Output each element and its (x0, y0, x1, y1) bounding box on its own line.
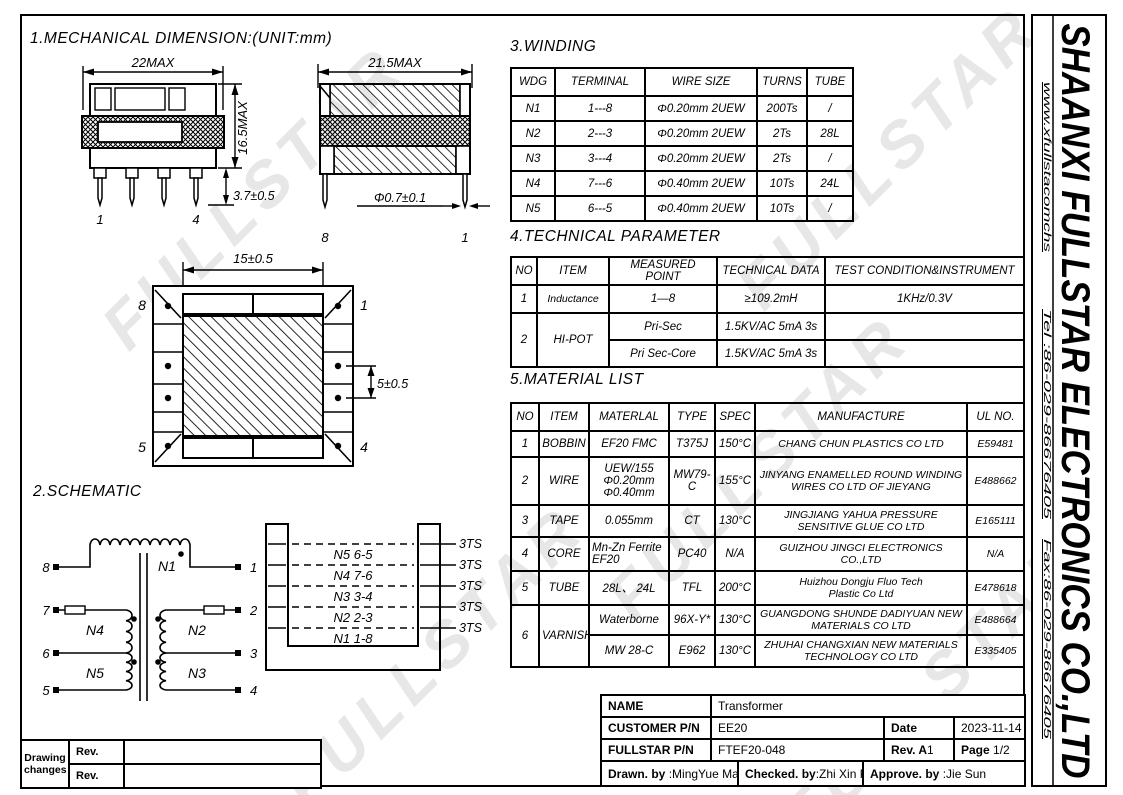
company-name: SHAANXI FULLSTAR ELECTRONICS CO.,LTD (1053, 24, 1097, 779)
customer-pn-label: CUSTOMER P/N (601, 717, 711, 739)
rev-value-empty (124, 764, 321, 788)
table-row: N47---6 Φ0.40mm 2UEW10Ts 24L (511, 171, 853, 196)
arrow-right (461, 69, 472, 76)
fullstar-pn: FTEF20-048 (711, 739, 884, 761)
arrow-left (183, 267, 194, 274)
tube-symbol (204, 606, 224, 614)
arrow-down (368, 388, 375, 398)
col-header: MEASURED POINT (609, 257, 717, 285)
part-name: Transformer (711, 695, 1025, 717)
table-row: N11---8 Φ0.20mm 2UEW200Ts / (511, 96, 853, 121)
side-pin-label-1: 1 (461, 230, 468, 245)
table-row: 6 VARNISH Waterborne 96X-Y* 130°C GUANGD… (511, 605, 1024, 635)
title-block-row: CUSTOMER P/N EE20 Date 2023-11-14 (601, 717, 1025, 739)
title-block-row: FULLSTAR P/N FTEF20-048 Rev. A1 Page 1/2 (601, 739, 1025, 761)
pin-label-5: 5 (42, 683, 50, 698)
pin (194, 178, 198, 205)
stack-layer-n4: N4 7-6 (333, 568, 373, 583)
col-header: TURNS (757, 68, 807, 96)
signature-row: Drawn. by :MingYue Ma Checked. by:Zhi Xi… (600, 760, 1026, 787)
table-row: N22---3 Φ0.20mm 2UEW2Ts 28L (511, 121, 853, 146)
customer-pn: EE20 (711, 717, 884, 739)
arrow-up (223, 168, 229, 178)
pin-label-4: 4 (250, 683, 257, 698)
arrow-down (232, 157, 239, 168)
fullstar-pn-label: FULLSTAR P/N (601, 739, 711, 761)
bottom-pin-label-4: 4 (360, 439, 368, 455)
table-row: 1 BOBBIN EF20 FMC T375J 150°C CHANG CHUN… (511, 431, 1024, 457)
company-website: www.xfullstacomchs (1041, 82, 1052, 252)
arrow-left (469, 203, 478, 209)
front-width-dim: 22MAX (131, 55, 176, 70)
col-header: WDG (511, 68, 555, 96)
winding-table: WDG TERMINAL WIRE SIZE TURNS TUBE N11---… (510, 67, 854, 222)
page-cell: Page 1/2 (954, 739, 1025, 761)
title-block: NAME Transformer CUSTOMER P/N EE20 Date … (600, 694, 1026, 762)
drawn-by-cell: Drawn. by :MingYue Ma (601, 761, 738, 786)
title-block-row: NAME Transformer (601, 695, 1025, 717)
col-header: TYPE (669, 403, 715, 431)
front-pinlen-dim: 3.7±0.5 (233, 189, 275, 203)
table-header-row: NO ITEM MEASURED POINT TECHNICAL DATA TE… (511, 257, 1024, 285)
winding-title: 3.WINDING (510, 38, 596, 56)
company-sidebar: www.xfullstacomchs Tel :86-029-86676405 … (1031, 14, 1107, 787)
arrow-left (83, 69, 94, 76)
arrow-down (223, 195, 229, 205)
rev-cell: Rev. A1 (884, 739, 954, 761)
pin-label-6: 6 (42, 646, 50, 661)
checked-by-cell: Checked. by:Zhi Xin Pu (738, 761, 863, 786)
arrow-up (232, 84, 239, 95)
arrow-left (318, 69, 329, 76)
tape-label: 3TS (459, 558, 483, 572)
material-table: NO ITEM MATERLAL TYPE SPEC MANUFACTURE U… (510, 402, 1025, 668)
pin-label-3: 3 (250, 646, 258, 661)
col-header: MANUFACTURE (755, 403, 967, 431)
side-pin-dia-dim: Φ0.7±0.1 (374, 191, 426, 205)
col-header: TECHNICAL DATA (717, 257, 825, 285)
front-pin-label-1: 1 (96, 212, 103, 227)
material-title: 5.MATERIAL LIST (510, 371, 644, 389)
bottom-pitch-dim: 5±0.5 (377, 377, 408, 391)
rev-value-empty (124, 740, 321, 764)
side-view-drawing: 21.5MAX Φ0.7±0.1 8 1 (300, 52, 495, 247)
arrow-right (312, 267, 323, 274)
tube-symbol (65, 606, 85, 614)
pin-label-8: 8 (42, 560, 50, 575)
bottom-pin-label-1: 1 (360, 297, 368, 313)
tape-label: 3TS (459, 579, 483, 593)
col-header: TERMINAL (555, 68, 645, 96)
table-row: 3 TAPE 0.055mm CT 130°C JINGJIANG YAHUA … (511, 505, 1024, 537)
winding-label-n2: N2 (188, 622, 206, 638)
col-header: MATERLAL (589, 403, 669, 431)
pin (130, 178, 134, 205)
table-row: N56---5 Φ0.40mm 2UEW10Ts / (511, 196, 853, 221)
technical-title: 4.TECHNICAL PARAMETER (510, 228, 721, 246)
schematic-drawing: 8 7 6 5 1 2 3 4 N1 N4 N5 N2 N3 (28, 505, 268, 705)
datasheet-page: FULLSTAR FULLSTAR FULLSTAR FULLSTAR FULL… (0, 0, 1123, 795)
rev-label: Rev. (69, 764, 124, 788)
pin (323, 174, 327, 207)
pin (162, 178, 166, 205)
pin (463, 174, 467, 207)
date-value: 2023-11-14 (954, 717, 1025, 739)
table-row: N33---4 Φ0.20mm 2UEW2Ts / (511, 146, 853, 171)
col-header: UL NO. (967, 403, 1024, 431)
winding-label-n4: N4 (86, 622, 104, 638)
drawing-changes-label: Drawing changes (21, 740, 69, 788)
winding-label-n5: N5 (86, 665, 104, 681)
stack-layer-n2: N2 2-3 (333, 610, 373, 625)
col-header: TEST CONDITION&INSTRUMENT (825, 257, 1024, 285)
pin-label-7: 7 (42, 603, 50, 618)
table-row: 2 HI-POT Pri-Sec 1.5KV/AC 5mA 3s (511, 313, 1024, 340)
arrow-up (368, 366, 375, 376)
date-label: Date (884, 717, 954, 739)
front-height-dim: 16.5MAX (235, 100, 250, 155)
col-header: ITEM (539, 403, 589, 431)
tape-label: 3TS (459, 621, 483, 635)
pin (98, 178, 102, 205)
col-header: NO (511, 403, 539, 431)
table-header-row: NO ITEM MATERLAL TYPE SPEC MANUFACTURE U… (511, 403, 1024, 431)
col-header: ITEM (537, 257, 609, 285)
name-label: NAME (601, 695, 711, 717)
col-header: TUBE (807, 68, 853, 96)
pin-label-2: 2 (249, 603, 258, 618)
table-row: 2 WIRE UEW/155 Φ0.20mm Φ0.40mm MW79-C 15… (511, 457, 1024, 505)
company-fax: Fax:86-029-86676405 (1041, 539, 1052, 740)
col-header: NO (511, 257, 537, 285)
drawing-changes-block: Drawing changes Rev. Rev. (20, 739, 322, 789)
table-row: 5 TUBE 28L、 24L TFL 200°C Huizhou Dongju… (511, 571, 1024, 605)
table-header-row: WDG TERMINAL WIRE SIZE TURNS TUBE (511, 68, 853, 96)
winding-label-n1: N1 (158, 558, 176, 574)
approve-by-cell: Approve. by :Jie Sun (863, 761, 1025, 786)
side-width-dim: 21.5MAX (367, 55, 423, 70)
side-pin-label-8: 8 (321, 230, 329, 245)
bottom-view-drawing: 15±0.5 (108, 248, 418, 483)
bottom-width-dim: 15±0.5 (233, 251, 273, 266)
mechanical-title: 1.MECHANICAL DIMENSION:(UNIT:mm) (30, 30, 332, 48)
side-body (320, 84, 470, 207)
bottom-pin-label-8: 8 (138, 297, 146, 313)
stack-layer-n3: N3 3-4 (333, 589, 372, 604)
front-body (82, 84, 224, 205)
bottom-pin-label-5: 5 (138, 439, 146, 455)
winding-label-n3: N3 (188, 665, 206, 681)
schematic-title: 2.SCHEMATIC (33, 483, 142, 501)
tape-label: 3TS (459, 537, 483, 551)
front-pin-label-4: 4 (192, 212, 199, 227)
company-tel: Tel :86-029-86676405 (1041, 309, 1052, 520)
col-header: WIRE SIZE (645, 68, 757, 96)
technical-table: NO ITEM MEASURED POINT TECHNICAL DATA TE… (510, 256, 1025, 368)
stack-layer-n5: N5 6-5 (333, 547, 373, 562)
stack-layer-n1: N1 1-8 (333, 631, 373, 646)
front-view-drawing: 22MAX 16.5MAX 3.7±0 (48, 52, 298, 247)
arrow-right (452, 203, 461, 209)
col-header: SPEC (715, 403, 755, 431)
arrow-right (212, 69, 223, 76)
rev-label: Rev. (69, 740, 124, 764)
tape-label: 3TS (459, 600, 483, 614)
bottom-body (153, 286, 353, 466)
table-row: 4 CORE Mn-Zn Ferrite EF20 PC40 N/A GUIZH… (511, 537, 1024, 571)
winding-stack-diagram: N5 6-5 N4 7-6 N3 3-4 N2 2-3 N1 1-8 3TS 3… (258, 518, 498, 693)
table-row: 1 Inductance 1—8 ≥109.2mH 1KHz/0.3V (511, 285, 1024, 313)
pin-label-1: 1 (250, 560, 257, 575)
